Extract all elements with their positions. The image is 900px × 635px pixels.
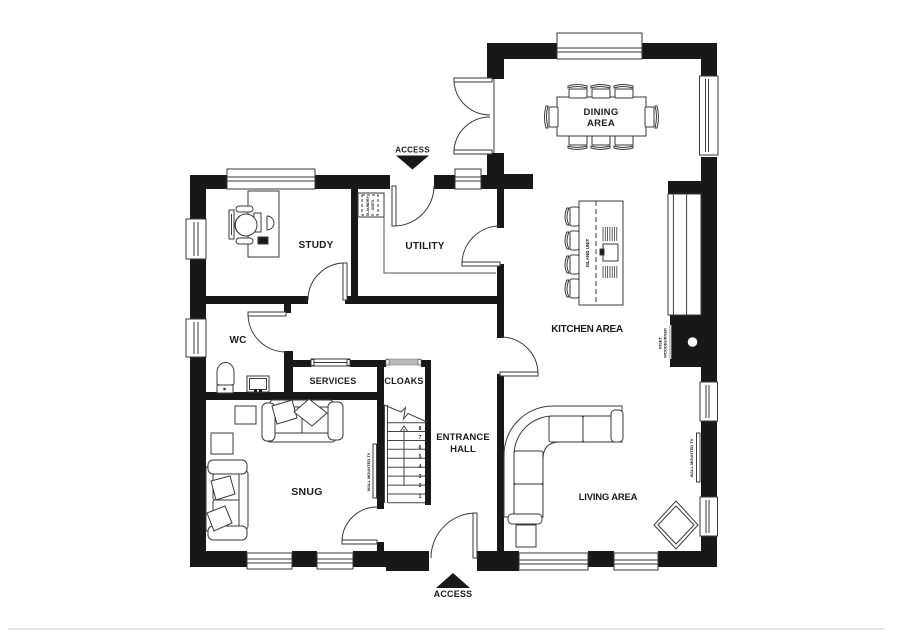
- svg-text:LIVING AREA: LIVING AREA: [579, 492, 638, 503]
- svg-text:HALL: HALL: [450, 444, 476, 455]
- svg-text:WOODBURNER: WOODBURNER: [663, 328, 668, 358]
- svg-text:WALL MOUNTED TV: WALL MOUNTED TV: [689, 438, 694, 477]
- svg-text:KITCHEN AREA: KITCHEN AREA: [551, 324, 623, 335]
- svg-text:WC: WC: [229, 335, 246, 346]
- svg-text:3: 3: [419, 474, 422, 480]
- svg-text:SERVICES: SERVICES: [310, 376, 357, 386]
- svg-text:AREA: AREA: [587, 118, 615, 129]
- svg-text:7: 7: [419, 435, 422, 441]
- svg-text:WALL MOUNTED TV: WALL MOUNTED TV: [366, 452, 371, 491]
- svg-text:6: 6: [419, 445, 422, 451]
- svg-text:DINING: DINING: [583, 107, 618, 118]
- svg-text:4: 4: [419, 464, 422, 470]
- svg-text:STUDY: STUDY: [299, 240, 334, 251]
- svg-text:1: 1: [419, 494, 422, 500]
- svg-text:8: 8: [419, 426, 422, 432]
- svg-text:UNITS: UNITS: [371, 199, 375, 210]
- svg-text:ISLAND UNIT: ISLAND UNIT: [585, 239, 590, 268]
- svg-text:ENTRANCE: ENTRANCE: [436, 432, 490, 443]
- svg-text:2: 2: [419, 483, 422, 489]
- svg-text:ACCESS: ACCESS: [395, 146, 430, 155]
- svg-text:LAUNDRY: LAUNDRY: [366, 196, 370, 214]
- svg-text:UTILITY: UTILITY: [405, 241, 444, 252]
- svg-text:5: 5: [419, 454, 422, 460]
- svg-text:CLOAKS: CLOAKS: [384, 376, 423, 386]
- svg-text:ACCESS: ACCESS: [434, 589, 473, 599]
- svg-text:SNUG: SNUG: [291, 486, 323, 498]
